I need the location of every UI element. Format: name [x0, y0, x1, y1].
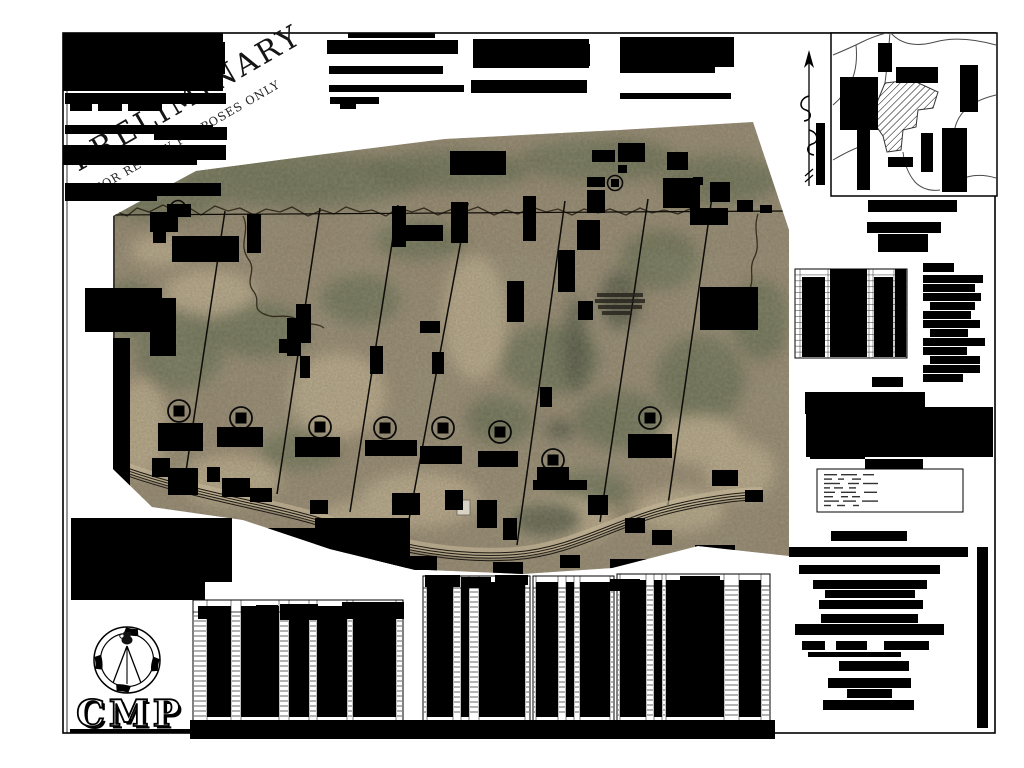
- redacted-table-column: [666, 580, 724, 717]
- plat-drawing: PRELIMINARYFOR REVIEW PURPOSES ONLYCMPCM…: [0, 0, 1024, 768]
- redacted-table-column: [580, 582, 610, 717]
- redacted-lot-number: [438, 423, 449, 434]
- redacted-table-column: [241, 606, 279, 717]
- redacted-table-column: [620, 580, 646, 717]
- plat-sheet: PRELIMINARYFOR REVIEW PURPOSES ONLYCMPCM…: [0, 0, 1024, 768]
- redacted-table-column: [461, 582, 469, 717]
- illegible-note-line: [602, 311, 632, 315]
- redacted-table-column: [739, 580, 761, 717]
- certification-box: [817, 469, 963, 512]
- redacted-lot-number: [645, 413, 656, 424]
- illegible-note-line: [597, 293, 643, 297]
- illegible-note-line: [595, 299, 645, 303]
- redacted-lot-number: [236, 413, 247, 424]
- logo-text: CMP: [76, 693, 184, 735]
- cmp-logo: CMPCMP: [70, 627, 192, 738]
- compass-ring-segment: [98, 656, 99, 669]
- table-panel: [533, 576, 614, 721]
- redacted-lot-number: [315, 422, 326, 433]
- redacted-lot-number: [495, 427, 506, 438]
- redacted-table-column: [353, 606, 396, 717]
- redacted-table-footer: [190, 720, 775, 739]
- redacted-lot-number: [174, 406, 185, 417]
- table-panel: [423, 576, 530, 721]
- redacted-table-column: [654, 580, 662, 717]
- table-panel: [617, 574, 770, 721]
- redacted-table-column: [317, 606, 347, 717]
- redacted-table-column: [207, 606, 231, 717]
- redacted-lot-number: [548, 455, 559, 466]
- line-and-curve-tables: [190, 574, 775, 739]
- redacted-table-column: [289, 606, 309, 717]
- logo-underline: [70, 729, 192, 733]
- compass-ring-segment: [116, 688, 129, 690]
- north-arrow: [801, 50, 817, 186]
- redacted-table-column: [536, 582, 558, 717]
- redacted-lot-number: [380, 423, 391, 434]
- redacted-table-column: [566, 582, 574, 717]
- redacted-table-column: [427, 582, 453, 717]
- illegible-note-line: [598, 305, 642, 309]
- vicinity-map: [831, 32, 997, 196]
- area-table: [795, 269, 907, 358]
- redacted-table-column: [479, 582, 525, 717]
- redacted-lot-number: [611, 179, 619, 187]
- compass-ring-segment: [154, 658, 156, 671]
